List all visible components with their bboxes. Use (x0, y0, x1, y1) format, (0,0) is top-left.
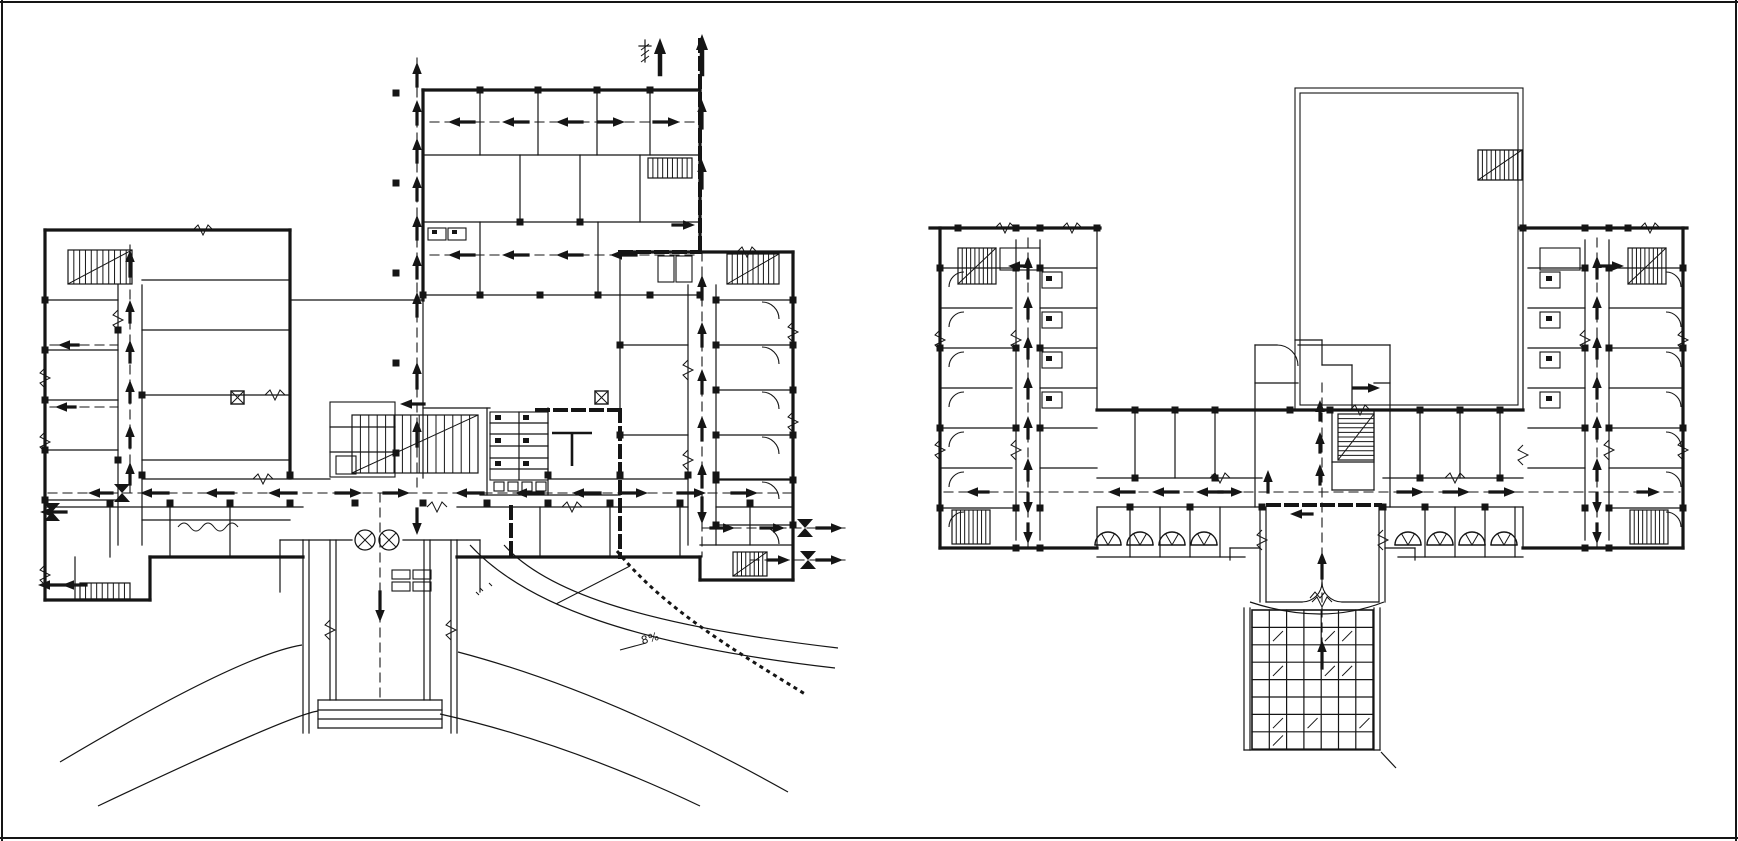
stair-outline (648, 158, 692, 178)
column-marker (393, 270, 400, 277)
door-fan-leaf (1102, 534, 1109, 545)
evac-arrow-head-icon (1592, 376, 1602, 388)
canopy-glass-slash (1273, 736, 1282, 745)
evac-arrow-head-icon (412, 420, 422, 432)
column-marker (1606, 425, 1613, 432)
fixture-solid (1046, 396, 1052, 401)
column-marker (42, 497, 49, 504)
door-fan-icon (1491, 532, 1517, 545)
fixture-solid (1546, 356, 1552, 361)
column-marker (1212, 407, 1219, 414)
evac-arrow-head-icon (412, 215, 422, 227)
canopy-glass-slash (1325, 666, 1334, 675)
column-marker (139, 472, 146, 479)
column-marker (1037, 505, 1044, 512)
evac-arrow-head-icon (556, 250, 568, 260)
stair-outline (1630, 510, 1668, 544)
exit-bowtie-icon (800, 551, 816, 560)
fixture-solid (1046, 276, 1052, 281)
evac-arrow-head-icon (1196, 487, 1208, 497)
evac-arrow-head-icon (556, 117, 568, 127)
door-fan-leaf (1140, 534, 1147, 545)
evac-arrow-head-icon (412, 138, 422, 150)
evac-arrow-head-icon (1023, 376, 1033, 388)
column-marker (227, 500, 234, 507)
column-marker (393, 450, 400, 457)
column-marker (1287, 407, 1294, 414)
fixture-solid (1546, 396, 1552, 401)
fixture-solid (523, 438, 529, 443)
fixture-outline (1295, 88, 1523, 410)
column-marker (617, 472, 624, 479)
stair-diagonal (68, 250, 132, 284)
door-swing-arc-icon (1666, 312, 1681, 327)
evac-arrow-head-icon (1315, 464, 1325, 476)
column-marker (1457, 407, 1464, 414)
door-fan-leaf (1498, 534, 1505, 545)
evac-arrow-head-icon (1458, 487, 1470, 497)
column-marker (287, 472, 294, 479)
column-marker (1606, 505, 1613, 512)
fixture-outline (413, 582, 431, 591)
fixture-outline (1540, 248, 1580, 270)
column-marker (107, 500, 114, 507)
evac-arrow-head-icon (88, 488, 100, 498)
fixture-solid (1546, 316, 1552, 321)
column-marker (1606, 345, 1613, 352)
site-path (178, 523, 238, 531)
column-marker (477, 292, 484, 299)
column-marker (352, 500, 359, 507)
door-fan-leaf (1440, 534, 1447, 545)
door-swing-arc-icon (949, 392, 964, 407)
column-marker (1259, 504, 1266, 511)
column-marker (1013, 545, 1020, 552)
evac-arrow-head-icon (1152, 487, 1164, 497)
column-marker (1680, 425, 1687, 432)
evac-arrow-head-icon (697, 369, 707, 381)
door-swing-arc-icon (1302, 582, 1322, 602)
fixture-outline (392, 570, 410, 579)
door-fan-icon (1159, 532, 1185, 545)
evac-arrow-head-icon (1315, 432, 1325, 444)
evac-arrow-head-icon (1592, 336, 1602, 348)
column-marker (713, 297, 720, 304)
evac-arrow-head-icon (268, 488, 280, 498)
column-marker (1520, 225, 1527, 232)
fixture-solid (432, 230, 437, 234)
fixture-solid (523, 415, 529, 420)
column-marker (1625, 225, 1632, 232)
evac-arrow-head-icon (58, 340, 70, 350)
column-marker (1132, 475, 1139, 482)
right-floor-plan (930, 88, 1688, 768)
evac-arrow-head-icon (412, 100, 422, 112)
column-marker (42, 447, 49, 454)
canopy-glass-slash (1308, 718, 1317, 727)
door-fan-icon (1427, 532, 1453, 545)
stair-diagonal (1628, 248, 1666, 284)
door-swing-arc-icon (1322, 582, 1342, 602)
evac-arrow-head-icon (1315, 400, 1325, 412)
exit-bowtie-icon (797, 519, 813, 528)
evac-arrow-head-icon (696, 34, 708, 50)
evac-arrow-head-icon (1023, 502, 1033, 514)
fixture-solid (495, 415, 501, 420)
door-swing-arc-icon (949, 432, 964, 447)
column-marker (1606, 225, 1613, 232)
column-marker (1037, 425, 1044, 432)
evac-arrow-head-icon (515, 488, 527, 498)
evac-arrow-head-icon (400, 399, 412, 409)
evac-arrow-head-icon (455, 488, 467, 498)
column-marker (1127, 504, 1134, 511)
fixture-solid (1046, 316, 1052, 321)
site-path (98, 711, 318, 806)
column-marker (393, 360, 400, 367)
evac-arrow-head-icon (125, 300, 135, 312)
column-marker (1187, 504, 1194, 511)
column-marker (1380, 504, 1387, 511)
fixture-solid (523, 461, 529, 466)
evac-arrow-head-icon (125, 462, 135, 474)
site-path (476, 583, 492, 595)
evac-arrow-head-icon (1023, 532, 1033, 544)
evac-arrow-head-icon (1231, 487, 1243, 497)
column-marker (1582, 225, 1589, 232)
column-marker (790, 477, 797, 484)
column-marker (1417, 475, 1424, 482)
column-marker (420, 292, 427, 299)
column-marker (1037, 345, 1044, 352)
site-path (1381, 752, 1396, 768)
column-marker (115, 457, 122, 464)
column-marker (1680, 505, 1687, 512)
column-marker (1497, 407, 1504, 414)
exit-bowtie-icon (797, 528, 813, 537)
column-marker (677, 500, 684, 507)
stair-outline (952, 510, 990, 544)
fixture-outline (494, 482, 504, 491)
canopy-glass-slash (1343, 631, 1352, 640)
evac-arrow-head-icon (1023, 336, 1033, 348)
door-fan-leaf (1204, 534, 1211, 545)
column-marker (1422, 504, 1429, 511)
evac-arrow-head-icon (125, 380, 135, 392)
column-marker (790, 342, 797, 349)
door-swing-arc-icon (1666, 272, 1681, 287)
door-swing-arc-icon (949, 472, 964, 487)
evac-arrow-head-icon (412, 176, 422, 188)
evac-arrow-head-icon (746, 488, 758, 498)
column-marker (484, 500, 491, 507)
canopy-glass-slash (1325, 631, 1334, 640)
column-marker (287, 500, 294, 507)
column-marker (1680, 265, 1687, 272)
door-swing-arc-icon (1666, 472, 1681, 487)
column-marker (535, 87, 542, 94)
exit-bowtie-icon (114, 484, 130, 493)
evac-arrow-head-icon (697, 463, 707, 475)
column-marker (1172, 407, 1179, 414)
column-marker (937, 265, 944, 272)
door-fan-leaf (1166, 534, 1173, 545)
fixture-outline (508, 482, 518, 491)
column-marker (1013, 225, 1020, 232)
evac-arrow-head-icon (697, 512, 707, 524)
column-marker (790, 432, 797, 439)
column-marker (937, 505, 944, 512)
fixture-outline (1300, 93, 1518, 405)
fixture-solid (495, 461, 501, 466)
evac-arrow-head-icon (697, 275, 707, 287)
column-marker (1094, 225, 1101, 232)
column-marker (713, 477, 720, 484)
fixture-outline (676, 256, 692, 282)
evac-arrow-head-icon (1023, 296, 1033, 308)
column-marker (607, 500, 614, 507)
evac-arrow-head-icon (502, 250, 514, 260)
evac-arrow-head-icon (613, 117, 625, 127)
evac-arrow-head-icon (375, 610, 385, 622)
site-path (1250, 602, 1384, 614)
fixture-solid (1546, 276, 1552, 281)
evac-arrow-head-icon (654, 38, 666, 54)
floor-plan-drawing (0, 0, 1738, 841)
left-floor-plan (38, 34, 845, 806)
evac-arrow-head-icon (125, 340, 135, 352)
stair-diagonal (352, 415, 478, 473)
canopy-glass-slash (1273, 666, 1282, 675)
exit-bowtie-icon (114, 493, 130, 502)
evac-arrow-head-icon (831, 523, 843, 533)
column-marker (1582, 425, 1589, 432)
door-fan-leaf (1504, 534, 1511, 545)
evac-arrow-head-icon (412, 523, 422, 535)
column-marker (1037, 265, 1044, 272)
door-swing-arc-icon (762, 482, 779, 499)
evac-arrow-head-icon (448, 250, 460, 260)
evac-arrow-head-icon (398, 488, 410, 498)
door-swing-arc-icon (762, 347, 779, 364)
evac-arrow-head-icon (1592, 256, 1602, 268)
column-marker (115, 327, 122, 334)
door-fan-leaf (1466, 534, 1473, 545)
door-fan-leaf (1434, 534, 1441, 545)
canopy-glass-slash (1360, 718, 1369, 727)
evac-arrow-head-icon (1108, 487, 1120, 497)
evac-arrow-head-icon (697, 416, 707, 428)
evac-arrow-head-icon (778, 555, 790, 565)
column-marker (393, 180, 400, 187)
site-path (60, 645, 302, 762)
column-marker (937, 345, 944, 352)
column-marker (477, 87, 484, 94)
column-marker (747, 500, 754, 507)
column-marker (139, 392, 146, 399)
evac-arrow-head-icon (831, 555, 843, 565)
fixture-outline (658, 256, 674, 282)
column-marker (1417, 407, 1424, 414)
evac-arrow-head-icon (697, 322, 707, 334)
column-marker (595, 292, 602, 299)
canopy-glass-slash (1273, 631, 1282, 640)
evac-arrow-head-icon (412, 62, 422, 74)
door-swing-arc-icon (762, 392, 779, 409)
column-marker (1497, 475, 1504, 482)
column-marker (937, 425, 944, 432)
column-marker (1037, 225, 1044, 232)
door-fan-leaf (1134, 534, 1141, 545)
door-fan-leaf (1198, 534, 1205, 545)
stair-diagonal (958, 248, 996, 284)
column-marker (517, 219, 524, 226)
evac-arrow-head-icon (448, 117, 460, 127)
evac-arrow-head-icon (350, 488, 362, 498)
column-marker (713, 387, 720, 394)
evac-arrow-head-icon (205, 488, 217, 498)
door-fan-leaf (1172, 534, 1179, 545)
fixture-solid (452, 230, 457, 234)
door-break-zigzag-icon (1518, 445, 1528, 465)
column-marker (1606, 545, 1613, 552)
column-marker (1582, 265, 1589, 272)
evac-arrow-head-icon (1368, 383, 1380, 393)
evac-arrow-head-icon (1592, 416, 1602, 428)
door-fan-leaf (1108, 534, 1115, 545)
column-marker (617, 432, 624, 439)
door-fan-icon (1459, 532, 1485, 545)
door-swing-arc-icon (1666, 352, 1681, 367)
site-path (440, 714, 700, 806)
column-marker (1013, 425, 1020, 432)
column-marker (545, 472, 552, 479)
evac-arrow-head-icon (125, 425, 135, 437)
evac-arrow-head-icon (610, 250, 622, 260)
column-marker (167, 500, 174, 507)
evac-arrow-head-icon (1592, 502, 1602, 514)
door-fan-icon (1095, 532, 1121, 545)
column-marker (393, 90, 400, 97)
fixture-outline (392, 582, 410, 591)
column-marker (713, 432, 720, 439)
column-marker (1582, 345, 1589, 352)
evac-arrow-head-icon (1317, 552, 1327, 564)
evac-arrow-head-icon (412, 362, 422, 374)
column-marker (1037, 545, 1044, 552)
column-marker (955, 225, 962, 232)
column-marker (594, 87, 601, 94)
evac-arrow-head-icon (1023, 416, 1033, 428)
door-swing-arc-icon (762, 302, 779, 319)
evac-arrow-head-icon (1317, 640, 1327, 652)
fixture-outline (336, 456, 356, 474)
column-marker (42, 297, 49, 304)
column-marker (790, 297, 797, 304)
evac-arrow-head-icon (1648, 487, 1660, 497)
site-path (552, 433, 592, 466)
door-fan-icon (1127, 532, 1153, 545)
column-marker (647, 87, 654, 94)
fixture-outline (413, 570, 431, 579)
column-marker (1482, 504, 1489, 511)
evac-arrow-head-icon (62, 580, 74, 590)
column-marker (1013, 345, 1020, 352)
door-fan-icon (1395, 532, 1421, 545)
site-path (617, 551, 805, 694)
column-marker (545, 500, 552, 507)
evac-arrow-head-icon (55, 402, 67, 412)
door-swing-arc-icon (762, 437, 779, 454)
column-marker (647, 292, 654, 299)
evac-arrow-head-icon (1023, 458, 1033, 470)
door-break-zigzag-icon (427, 502, 447, 512)
door-swing-arc-icon (1666, 392, 1681, 407)
column-marker (1013, 505, 1020, 512)
exit-bowtie-icon (800, 560, 816, 569)
column-marker (420, 500, 427, 507)
fixture-outline (536, 482, 546, 491)
fixture-solid (1046, 356, 1052, 361)
evac-arrow-head-icon (966, 487, 978, 497)
column-marker (42, 397, 49, 404)
column-marker (577, 219, 584, 226)
column-marker (790, 387, 797, 394)
door-fan-leaf (1472, 534, 1479, 545)
evac-arrow-head-icon (502, 117, 514, 127)
column-marker (1132, 407, 1139, 414)
column-marker (537, 292, 544, 299)
column-marker (1582, 505, 1589, 512)
evac-arrow-head-icon (1412, 487, 1424, 497)
site-path (458, 652, 788, 792)
door-fan-icon (1191, 532, 1217, 545)
evac-arrow-head-icon (1290, 509, 1302, 519)
column-marker (1582, 545, 1589, 552)
evac-arrow-head-icon (412, 254, 422, 266)
evac-arrow-head-icon (572, 488, 584, 498)
door-swing-arc-icon (949, 352, 964, 367)
canopy-glass-slash (1343, 666, 1352, 675)
fixture-solid (495, 438, 501, 443)
evac-arrow-head-icon (668, 117, 680, 127)
cad-drawing-page: 8% (0, 0, 1738, 841)
column-marker (42, 347, 49, 354)
door-fan-leaf (1402, 534, 1409, 545)
column-marker (1327, 407, 1334, 414)
column-marker (790, 522, 797, 529)
evac-arrow-head-icon (1504, 487, 1516, 497)
door-swing-arc-icon (949, 312, 964, 327)
evac-arrow-head-icon (1592, 532, 1602, 544)
column-marker (713, 342, 720, 349)
column-marker (685, 472, 692, 479)
evac-arrow-head-icon (636, 488, 648, 498)
door-fan-leaf (1408, 534, 1415, 545)
evac-arrow-head-icon (694, 488, 706, 498)
column-marker (1212, 475, 1219, 482)
evac-arrow-head-icon (1592, 458, 1602, 470)
evac-arrow-head-icon (1263, 470, 1273, 482)
canopy-glass-slash (1273, 718, 1282, 727)
evac-arrow-head-icon (1612, 261, 1624, 271)
column-marker (1680, 345, 1687, 352)
evac-arrow-head-icon (1592, 296, 1602, 308)
column-marker (617, 342, 624, 349)
